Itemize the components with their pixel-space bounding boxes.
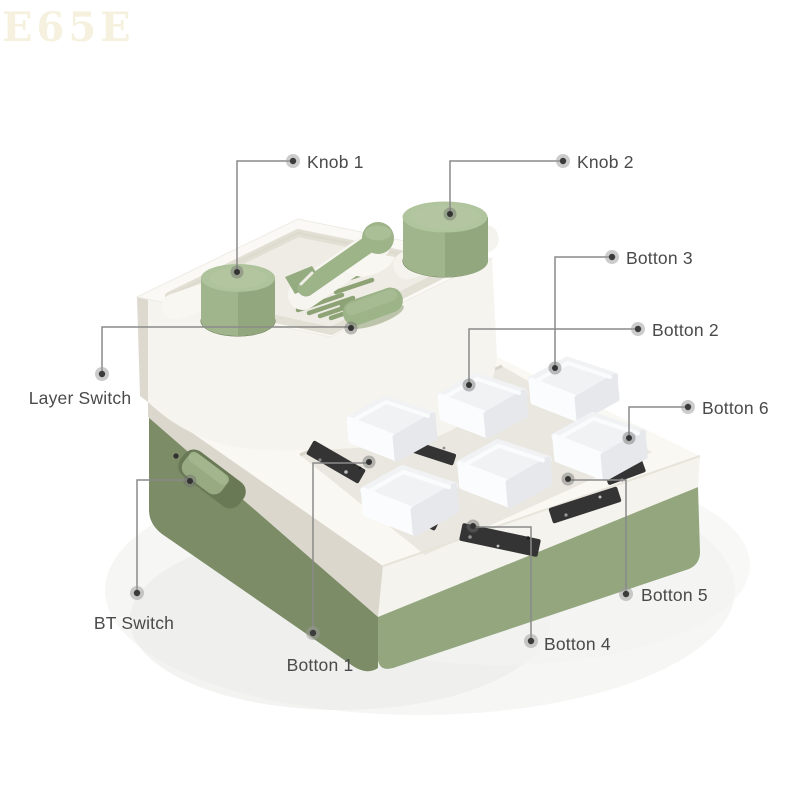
callout-label-botton-3: Botton 3 — [626, 248, 693, 268]
callout-label-bt-switch: BT Switch — [94, 613, 174, 633]
callout-dot-bt-switch-label — [130, 586, 144, 600]
callout-dot-botton-1-label — [306, 626, 320, 640]
callout-dot-botton-6-label — [681, 400, 695, 414]
callout-dot-botton-3-end — [549, 362, 562, 375]
callout-label-knob-1: Knob 1 — [307, 152, 364, 172]
callout-label-botton-4: Botton 4 — [544, 634, 611, 654]
callout-dot-botton-4-label — [524, 634, 538, 648]
callout-label-layer-switch: Layer Switch — [29, 388, 132, 408]
callout-dot-botton-1-end — [363, 456, 376, 469]
callout-dot-botton-2-end — [463, 379, 476, 392]
callout-dot-layer-switch-end — [345, 322, 358, 335]
callout-dot-botton-5-label — [619, 587, 633, 601]
leader-line-botton-3 — [555, 257, 612, 368]
callout-label-knob-2: Knob 2 — [577, 152, 634, 172]
callout-dot-bt-switch-end — [184, 475, 197, 488]
callout-dot-knob-1-label — [286, 154, 300, 168]
callout-dot-botton-5-end — [562, 473, 575, 486]
callout-dot-knob-1-end — [231, 266, 244, 279]
callout-label-botton-2: Botton 2 — [652, 320, 719, 340]
callout-dot-botton-4-end — [467, 520, 480, 533]
callout-dot-botton-3-label — [605, 250, 619, 264]
callout-dot-knob-2-label — [556, 154, 570, 168]
callout-label-botton-1: Botton 1 — [287, 655, 354, 675]
reset-hole — [173, 453, 178, 458]
body-back-left-sliver — [137, 293, 148, 402]
callout-label-botton-6: Botton 6 — [702, 398, 769, 418]
callout-dot-knob-2-end — [444, 208, 457, 221]
callout-dot-layer-switch-label — [95, 367, 109, 381]
product-image: E65E — [0, 0, 800, 800]
lever-head-cap — [365, 226, 392, 241]
callout-label-botton-5: Botton 5 — [641, 585, 708, 605]
callout-dot-botton-6-end — [623, 432, 636, 445]
callout-dot-botton-2-label — [631, 322, 645, 336]
